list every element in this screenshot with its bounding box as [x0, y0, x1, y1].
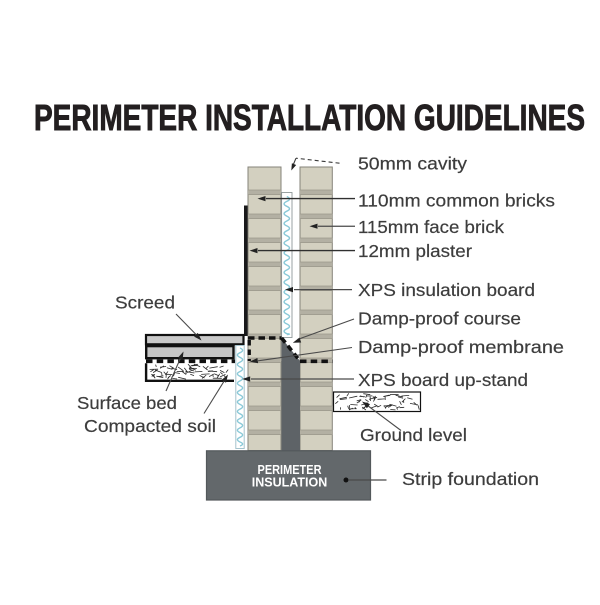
svg-text:Strip foundation: Strip foundation: [402, 469, 539, 489]
svg-text:Ground level: Ground level: [360, 425, 467, 445]
svg-text:115mm face brick: 115mm face brick: [358, 217, 504, 237]
svg-text:XPS insulation board: XPS insulation board: [358, 280, 535, 300]
svg-text:Damp-proof membrane: Damp-proof membrane: [358, 337, 564, 357]
svg-text:Damp-proof course: Damp-proof course: [358, 309, 521, 329]
svg-text:110mm common bricks: 110mm common bricks: [358, 191, 555, 211]
svg-text:Surface bed: Surface bed: [77, 393, 177, 413]
svg-text:XPS board up-stand: XPS board up-stand: [358, 370, 528, 390]
svg-text:Screed: Screed: [115, 293, 175, 313]
svg-text:12mm plaster: 12mm plaster: [358, 241, 472, 261]
svg-text:PERIMETER INSTALLATION GUIDELI: PERIMETER INSTALLATION GUIDELINES: [34, 98, 585, 138]
svg-text:Compacted soil: Compacted soil: [84, 416, 216, 436]
svg-text:50mm cavity: 50mm cavity: [358, 154, 467, 174]
svg-text:INSULATION: INSULATION: [252, 475, 328, 490]
